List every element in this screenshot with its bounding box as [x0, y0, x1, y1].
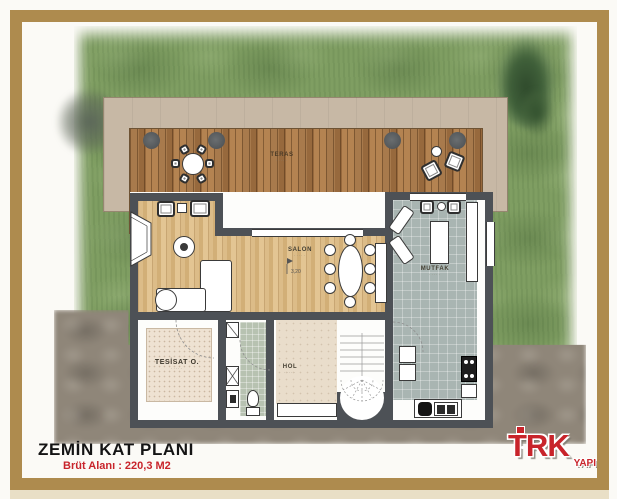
- logo-sub-text: YAPI: [574, 458, 596, 469]
- company-logo: TRK YAPI: [508, 432, 604, 476]
- floor-plan-sheet: TERAS ·····: [0, 0, 617, 499]
- door-swings: [176, 320, 423, 370]
- level-marker: 3,20: [287, 258, 301, 275]
- frame-bottom-strip: [10, 490, 609, 499]
- plan-linework: 3,20: [0, 0, 617, 499]
- level-marker-value: 3,20: [291, 269, 301, 275]
- washer-x-icon: [227, 323, 238, 384]
- staircase: [340, 333, 384, 420]
- logo-door-dot-icon: [521, 446, 524, 449]
- logo-main-text: TRK: [508, 428, 569, 464]
- gross-area-text: Brüt Alanı : 220,3 M2: [63, 460, 171, 472]
- bay-window: [131, 212, 151, 266]
- page-title: ZEMİN KAT PLANI: [38, 440, 194, 460]
